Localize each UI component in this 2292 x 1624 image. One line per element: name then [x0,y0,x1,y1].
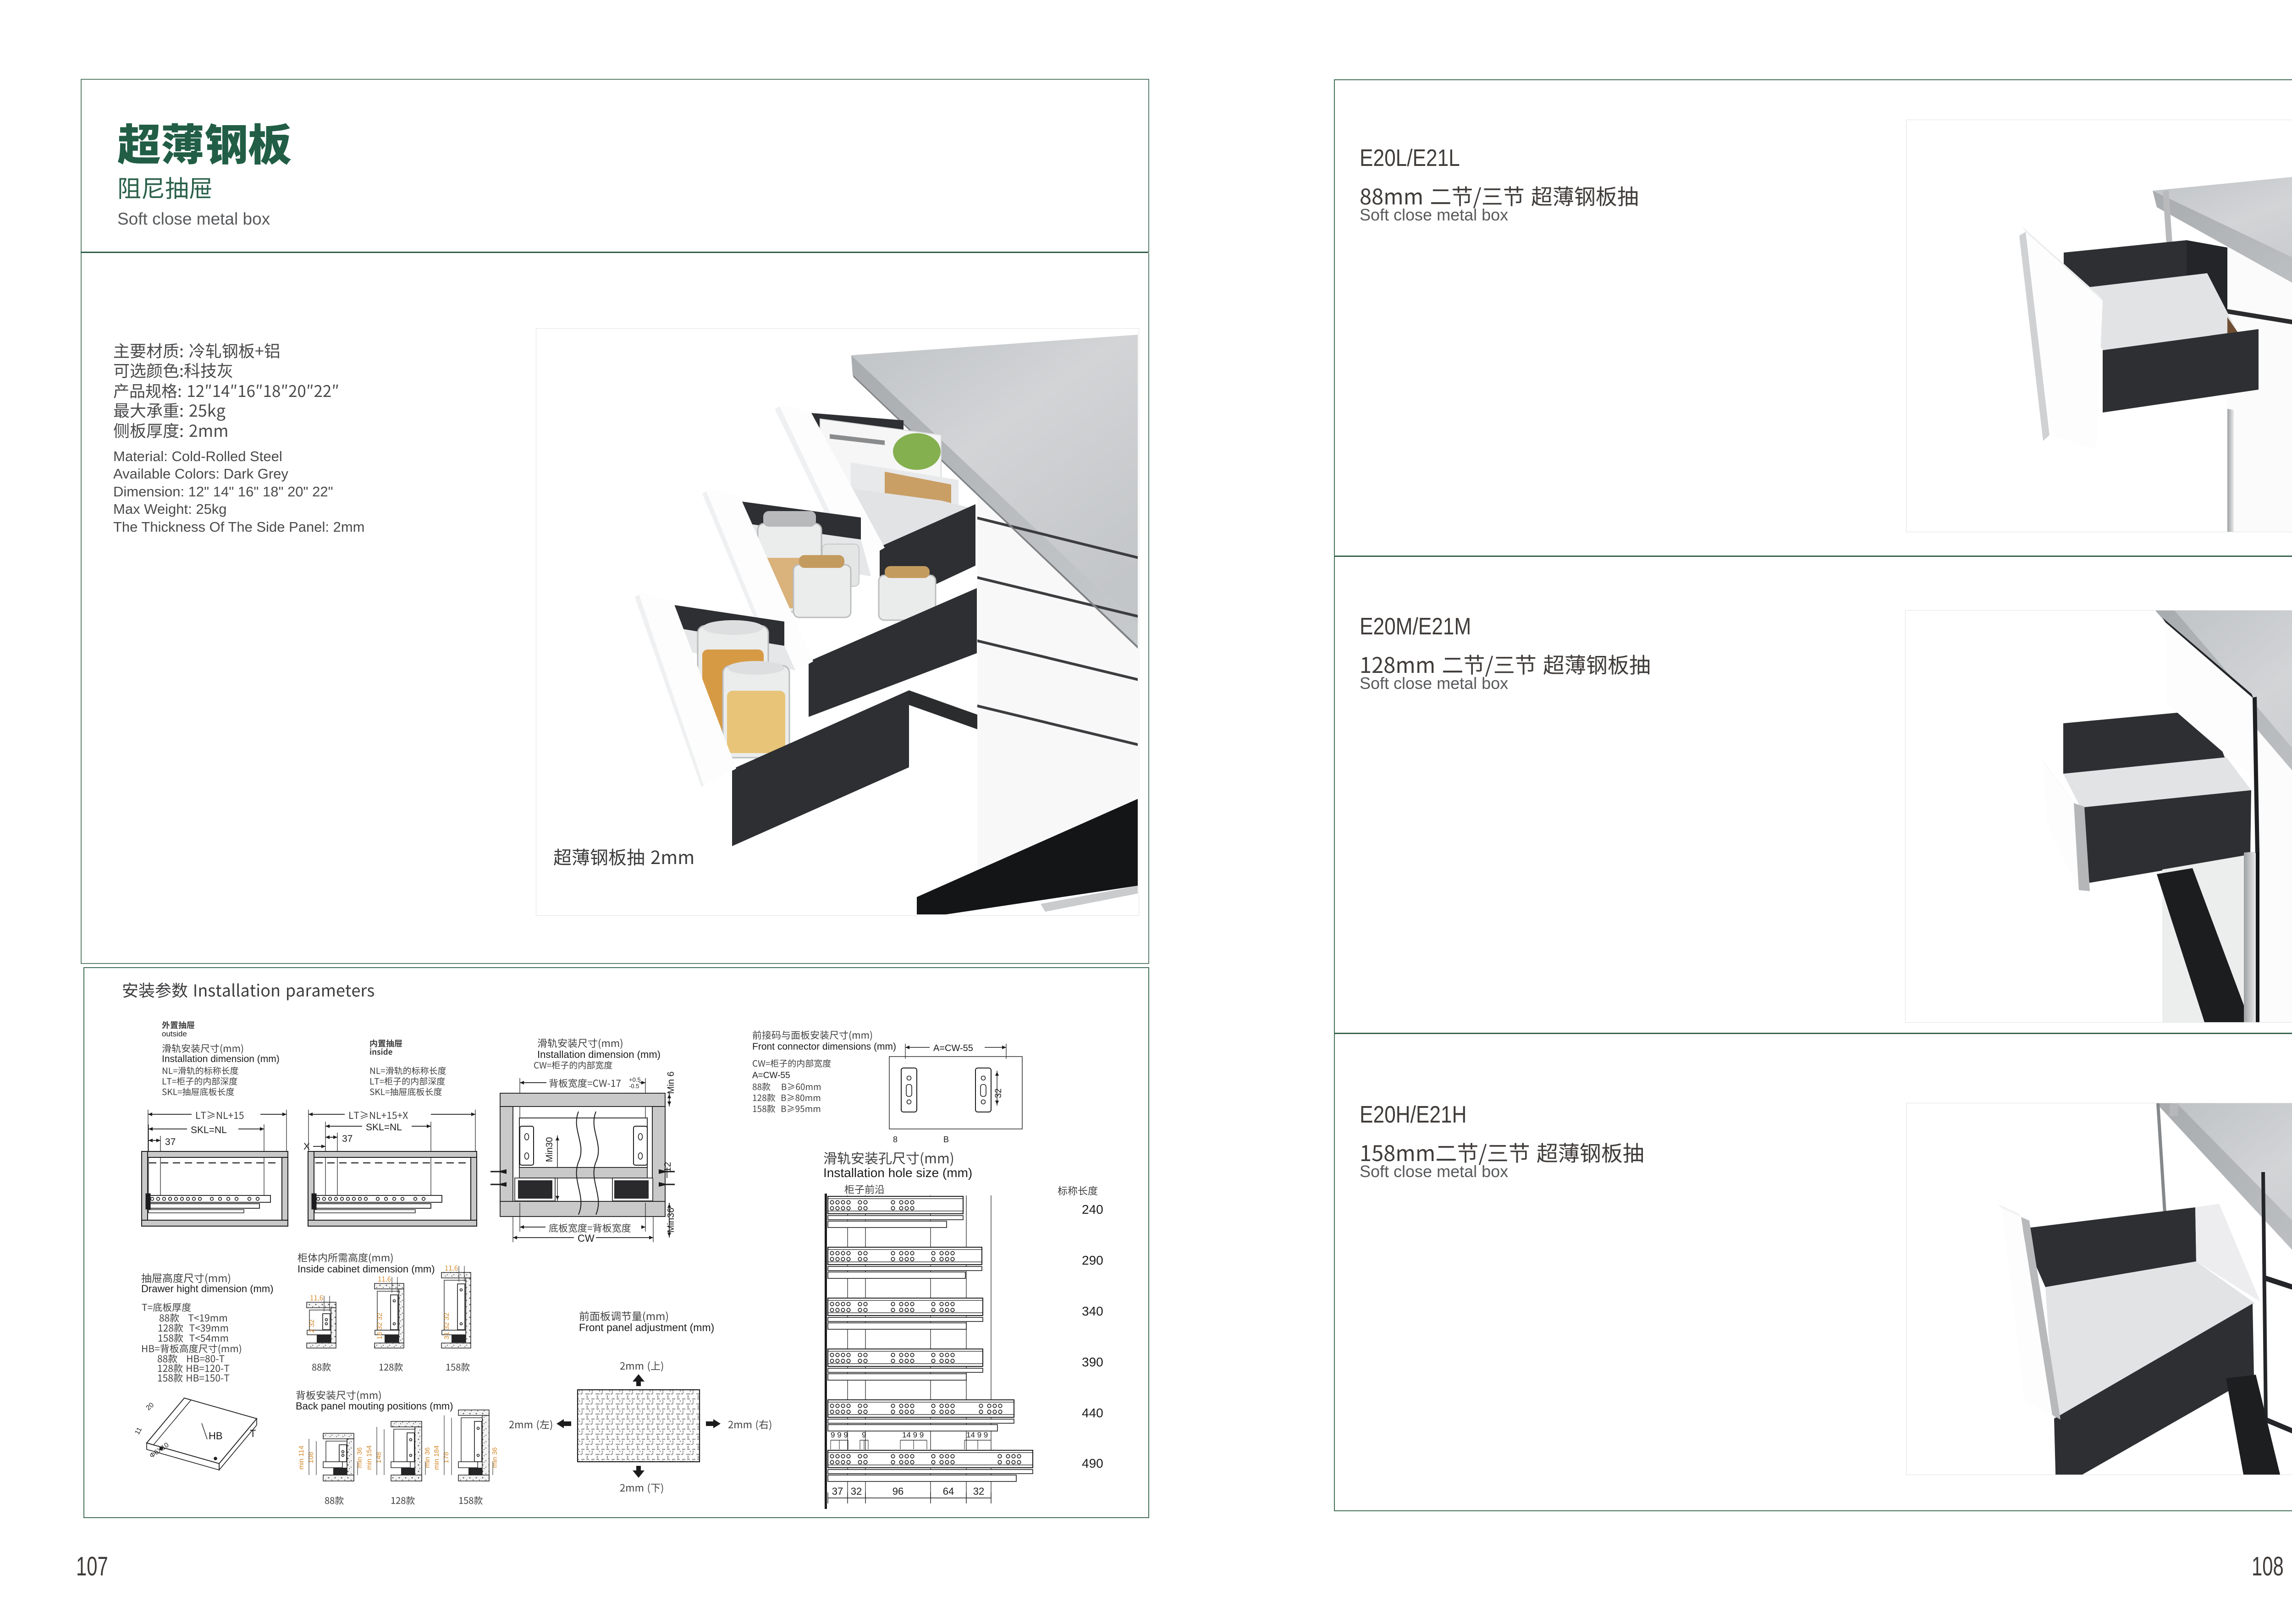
svg-text:390: 390 [1082,1355,1103,1369]
svg-text:A=CW-55: A=CW-55 [752,1071,790,1080]
svg-text:SKL=NL: SKL=NL [366,1122,402,1133]
svg-text:490: 490 [1082,1456,1103,1470]
svg-text:Front panel adjustment (mm): Front panel adjustment (mm) [579,1321,714,1333]
svg-text:Back panel mouting positions (: Back panel mouting positions (mm) [296,1400,453,1412]
svg-text:min 36: min 36 [491,1447,499,1468]
svg-text:32: 32 [973,1486,984,1497]
svg-text:2 32: 2 32 [308,1319,316,1332]
svg-text:min 36: min 36 [356,1447,364,1468]
svg-text:min 36: min 36 [424,1447,431,1468]
svg-text:37: 37 [832,1486,843,1497]
svg-text:8: 8 [893,1135,898,1144]
svg-text:Installation dimension (mm): Installation dimension (mm) [162,1054,280,1064]
svg-text:32: 32 [994,1088,1003,1098]
svg-text:37: 37 [165,1137,176,1147]
svg-text:290: 290 [1082,1253,1103,1267]
svg-text:T: T [250,1428,256,1439]
svg-text:Min 6: Min 6 [666,1072,676,1094]
svg-text:340: 340 [1082,1304,1103,1318]
svg-text:B: B [943,1135,949,1144]
svg-text:32: 32 [851,1486,862,1497]
svg-text:148: 148 [375,1452,383,1463]
svg-text:Inside cabinet dimension (mm): Inside cabinet dimension (mm) [298,1263,435,1275]
svg-text:+0.5: +0.5 [629,1076,641,1083]
svg-text:HB: HB [209,1430,223,1442]
svg-text:64: 64 [943,1486,954,1497]
svg-text:11: 11 [133,1426,143,1436]
svg-text:CW: CW [578,1233,595,1244]
svg-text:Installation dimension (mm): Installation dimension (mm) [537,1049,661,1060]
svg-text:min 114: min 114 [298,1446,305,1470]
svg-text:14 9 9: 14 9 9 [902,1431,924,1439]
svg-text:Installation hole size (mm): Installation hole size (mm) [823,1166,972,1180]
svg-text:Min36: Min36 [666,1208,676,1233]
svg-text:9: 9 [862,1431,866,1439]
svg-text:Min30: Min30 [545,1137,555,1162]
svg-text:31 32 32: 31 32 32 [443,1313,451,1339]
svg-text:108: 108 [307,1452,315,1463]
svg-text:Drawer hight dimension (mm): Drawer hight dimension (mm) [141,1283,274,1294]
svg-text:9 9 9: 9 9 9 [831,1431,848,1439]
svg-text:12: 12 [663,1162,673,1172]
svg-text:X: X [303,1141,310,1152]
svg-text:outside: outside [162,1029,187,1038]
svg-text:14 9 9: 14 9 9 [966,1431,988,1439]
svg-text:440: 440 [1082,1406,1103,1420]
svg-text:A=CW-55: A=CW-55 [933,1043,973,1053]
svg-text:min 184: min 184 [433,1445,441,1470]
svg-text:Front connector dimensions (m: Front connector dimensions (mm) [752,1041,896,1052]
svg-text:96: 96 [893,1486,904,1497]
svg-text:16 32 32: 16 32 32 [376,1313,384,1339]
svg-text:240: 240 [1082,1202,1103,1217]
svg-text:178: 178 [442,1452,450,1463]
svg-text:37: 37 [342,1134,353,1144]
svg-text:min 154: min 154 [365,1445,373,1470]
svg-text:20: 20 [144,1401,155,1412]
svg-text:SKL=NL: SKL=NL [191,1125,227,1135]
svg-text:-0.5: -0.5 [629,1083,639,1090]
